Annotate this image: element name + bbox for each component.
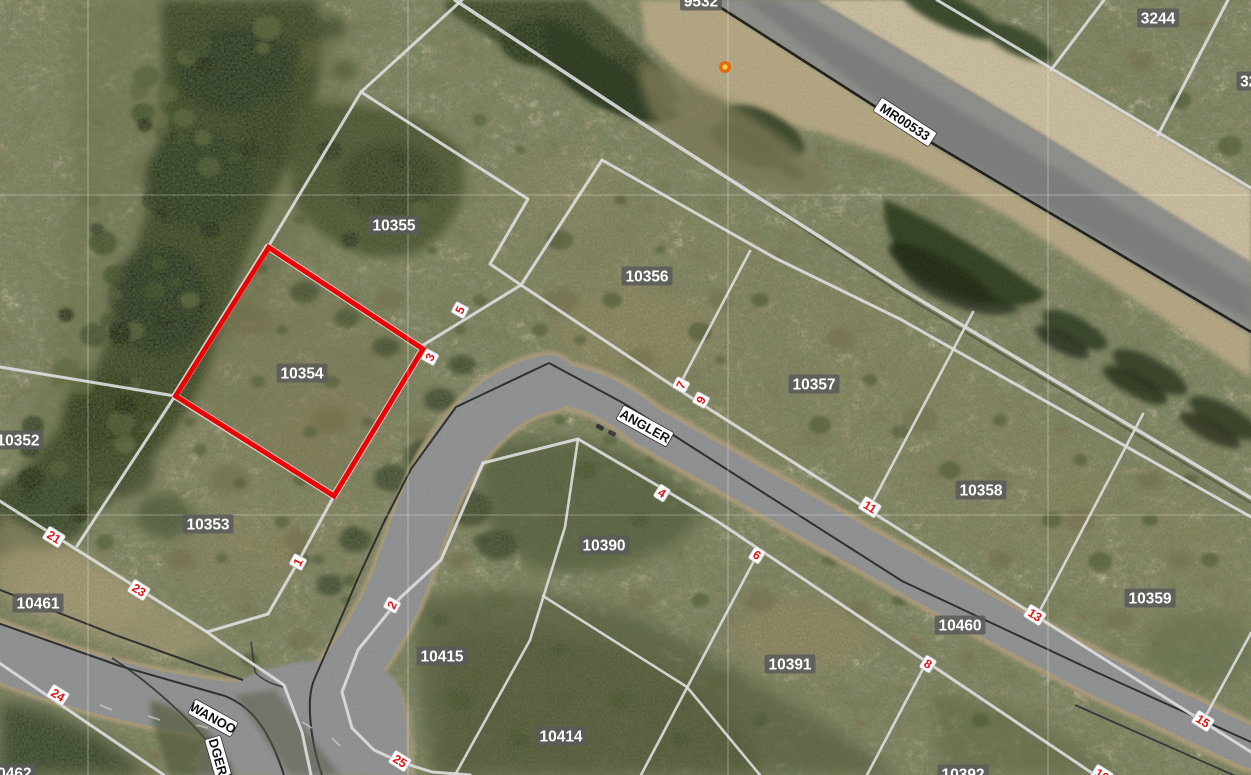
svg-text:9532: 9532	[684, 0, 718, 11]
svg-text:10353: 10353	[186, 517, 229, 534]
svg-text:10352: 10352	[0, 433, 40, 450]
svg-text:324: 324	[1240, 74, 1251, 91]
svg-text:10460: 10460	[938, 618, 981, 635]
svg-text:10358: 10358	[959, 483, 1002, 500]
svg-text:10356: 10356	[625, 269, 668, 286]
svg-text:10415: 10415	[420, 649, 463, 666]
svg-text:10462: 10462	[0, 766, 32, 775]
svg-text:10390: 10390	[582, 538, 625, 555]
svg-text:10392: 10392	[941, 767, 984, 775]
svg-text:10354: 10354	[280, 366, 323, 383]
svg-text:10391: 10391	[768, 657, 811, 674]
svg-text:10359: 10359	[1128, 591, 1171, 608]
svg-text:10461: 10461	[16, 596, 59, 613]
svg-text:10355: 10355	[372, 218, 415, 235]
svg-text:3244: 3244	[1141, 11, 1176, 28]
svg-text:10414: 10414	[539, 729, 582, 746]
svg-text:10357: 10357	[792, 377, 835, 394]
